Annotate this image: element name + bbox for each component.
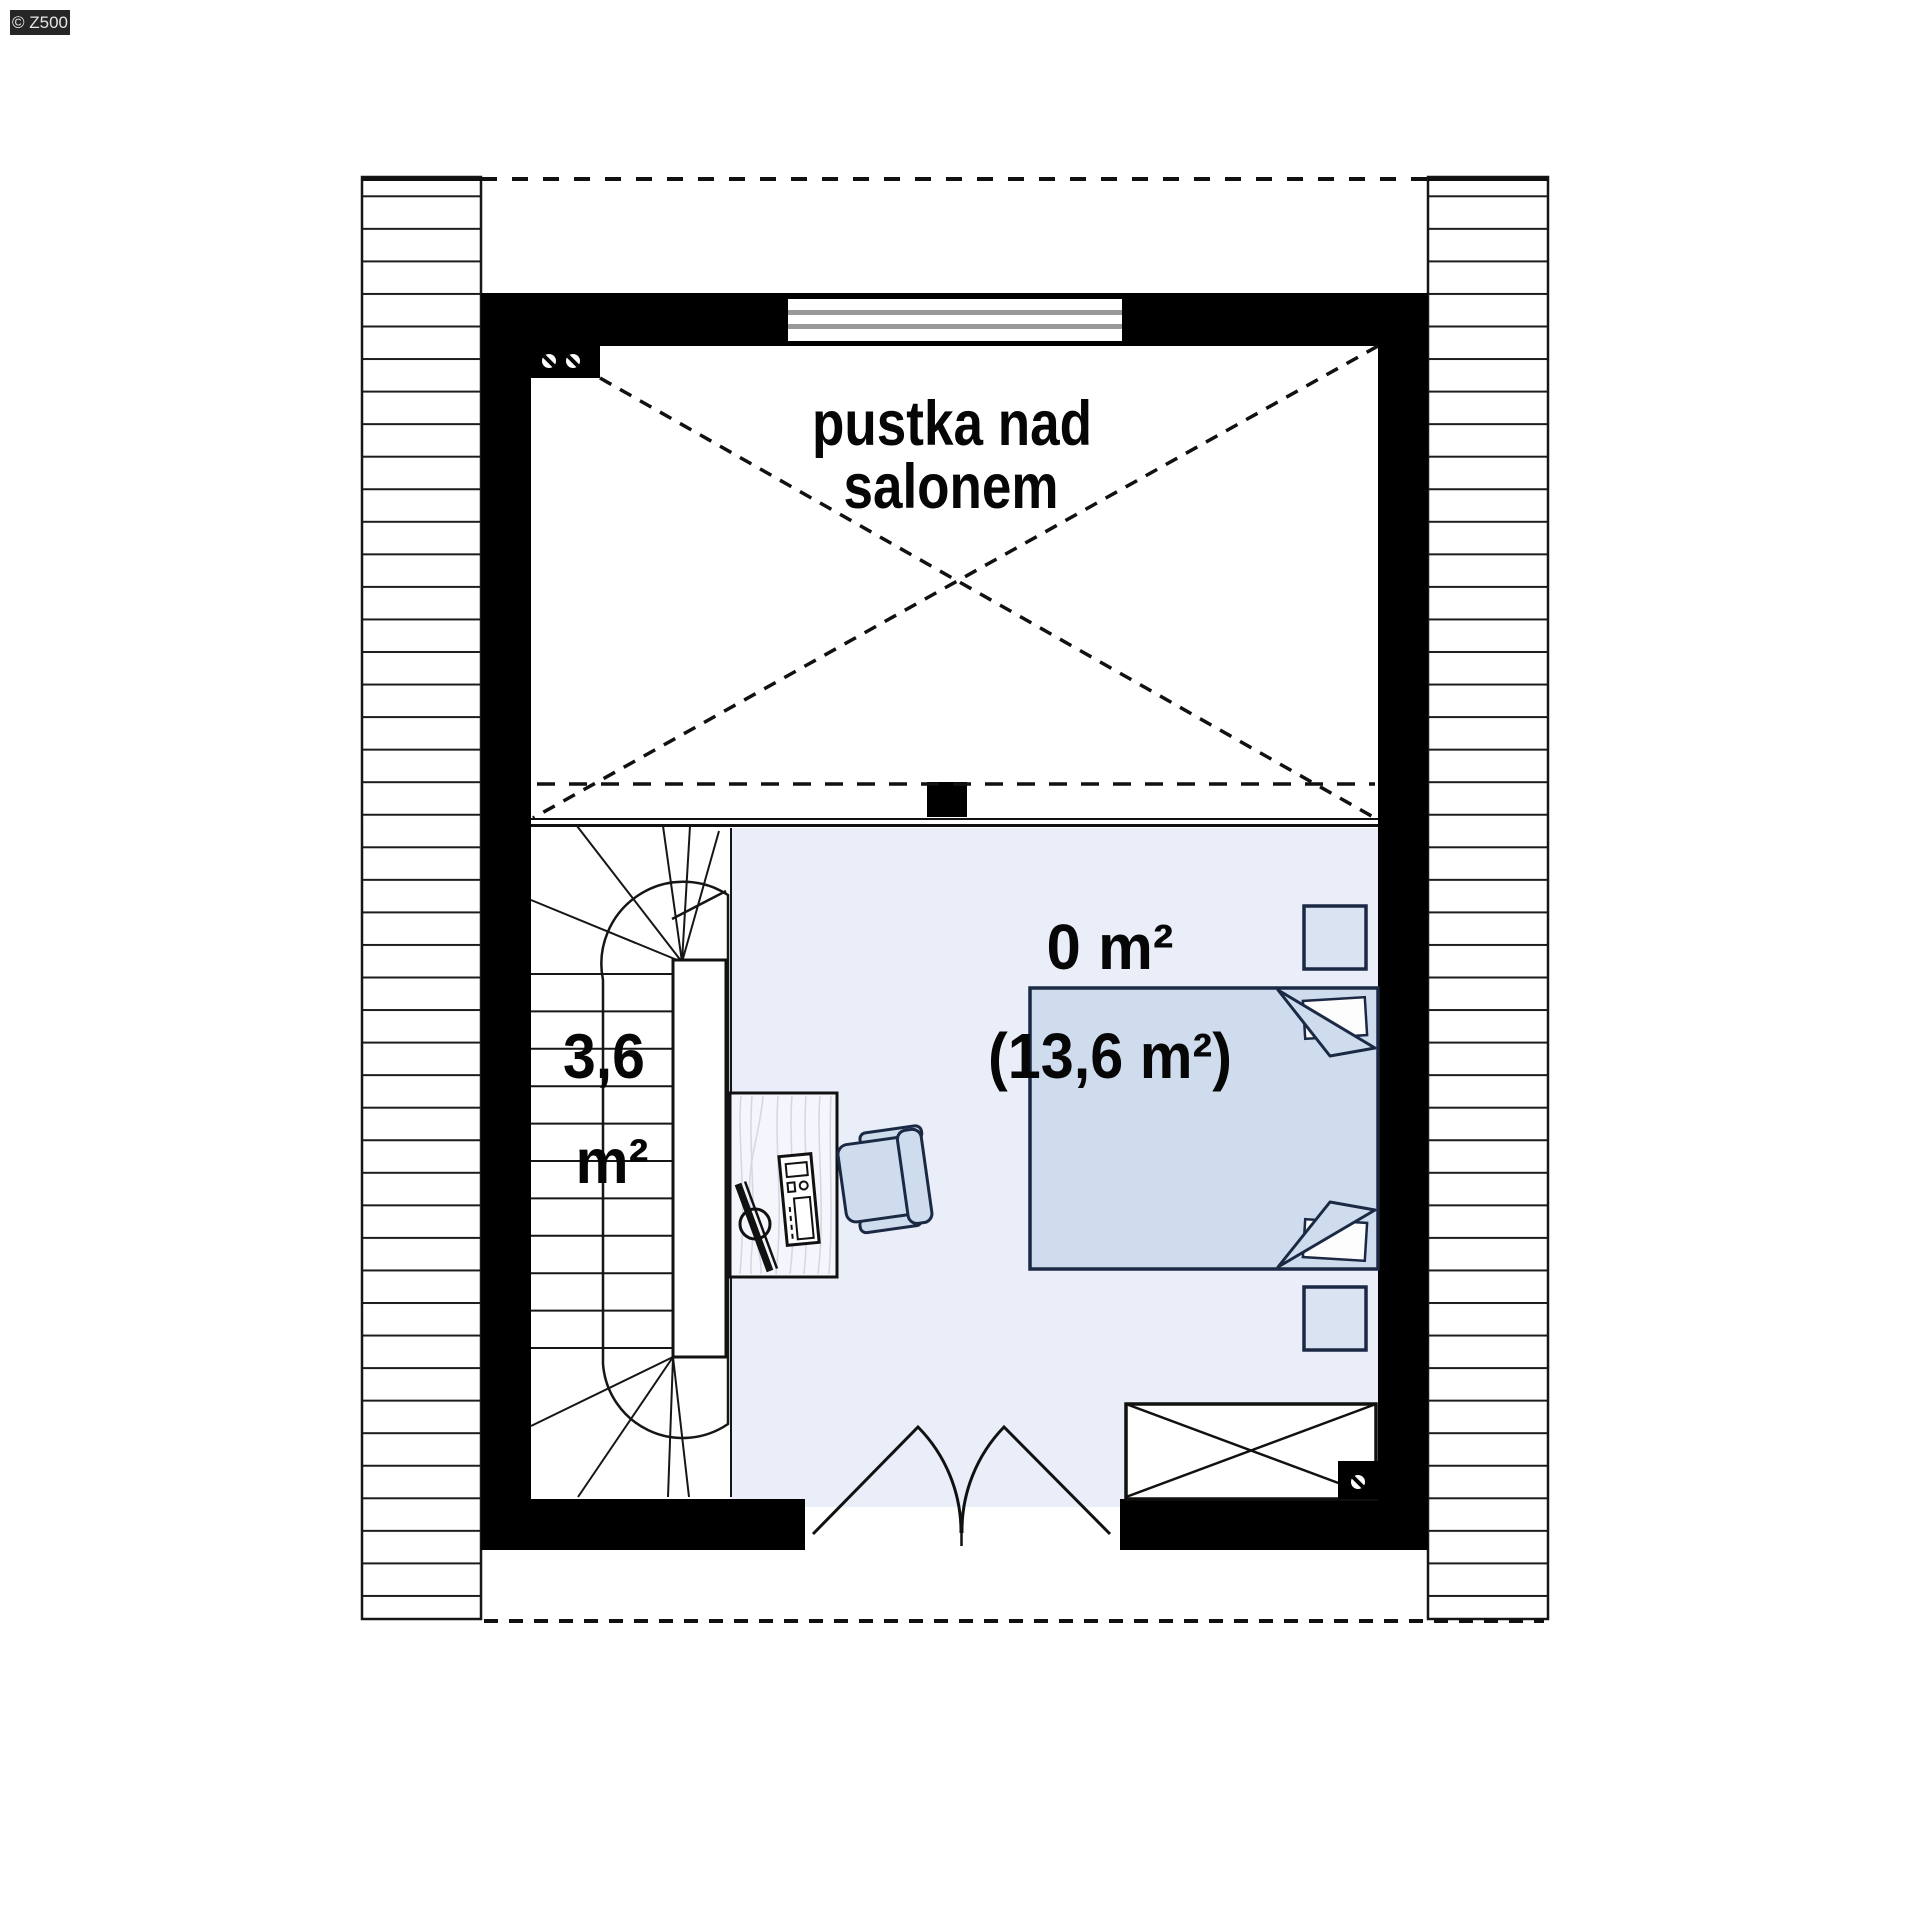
svg-text:0 m²: 0 m² xyxy=(1047,911,1174,983)
svg-text:© Z500: © Z500 xyxy=(12,13,68,32)
svg-text:(13,6 m²): (13,6 m²) xyxy=(988,1020,1232,1092)
svg-text:3,6: 3,6 xyxy=(563,1022,645,1092)
svg-text:m²: m² xyxy=(576,1127,649,1197)
svg-text:salonem: salonem xyxy=(844,452,1059,522)
svg-text:pustka nad: pustka nad xyxy=(812,389,1092,459)
